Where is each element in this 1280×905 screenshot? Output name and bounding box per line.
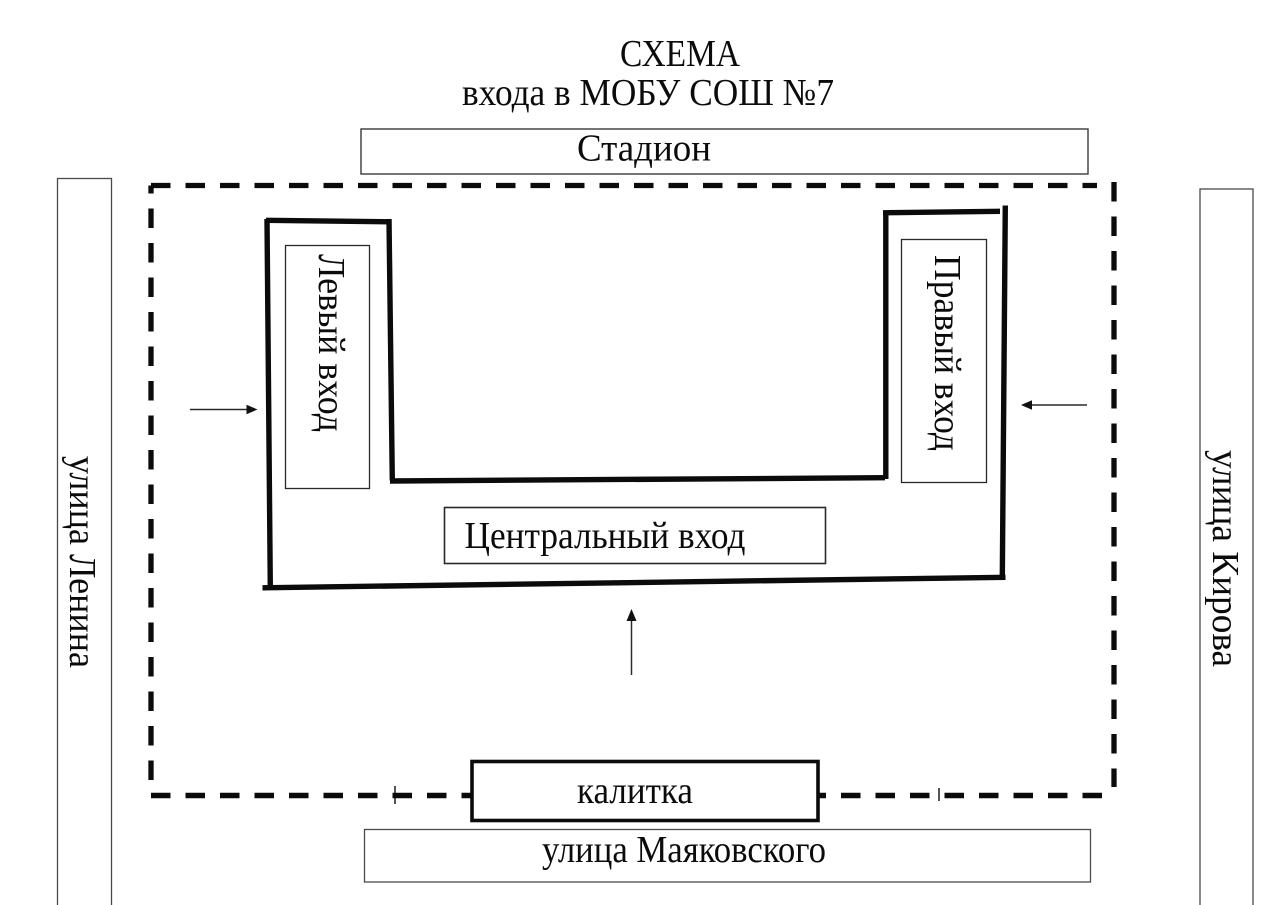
svg-text:Левый вход: Левый вход bbox=[310, 254, 352, 432]
svg-text:Стадион: Стадион bbox=[577, 128, 711, 170]
svg-text:СХЕМА: СХЕМА bbox=[620, 33, 740, 75]
svg-text:улица Маяковского: улица Маяковского bbox=[542, 829, 826, 871]
svg-text:калитка: калитка bbox=[577, 770, 693, 812]
svg-text:входа в МОБУ СОШ №7: входа в МОБУ СОШ №7 bbox=[462, 72, 834, 114]
svg-text:улица Ленина: улица Ленина bbox=[61, 456, 103, 668]
svg-text:улица Кирова: улица Кирова bbox=[1204, 450, 1246, 667]
svg-text:Правый вход: Правый вход bbox=[926, 255, 968, 451]
svg-text:Центральный вход: Центральный вход bbox=[465, 515, 746, 557]
